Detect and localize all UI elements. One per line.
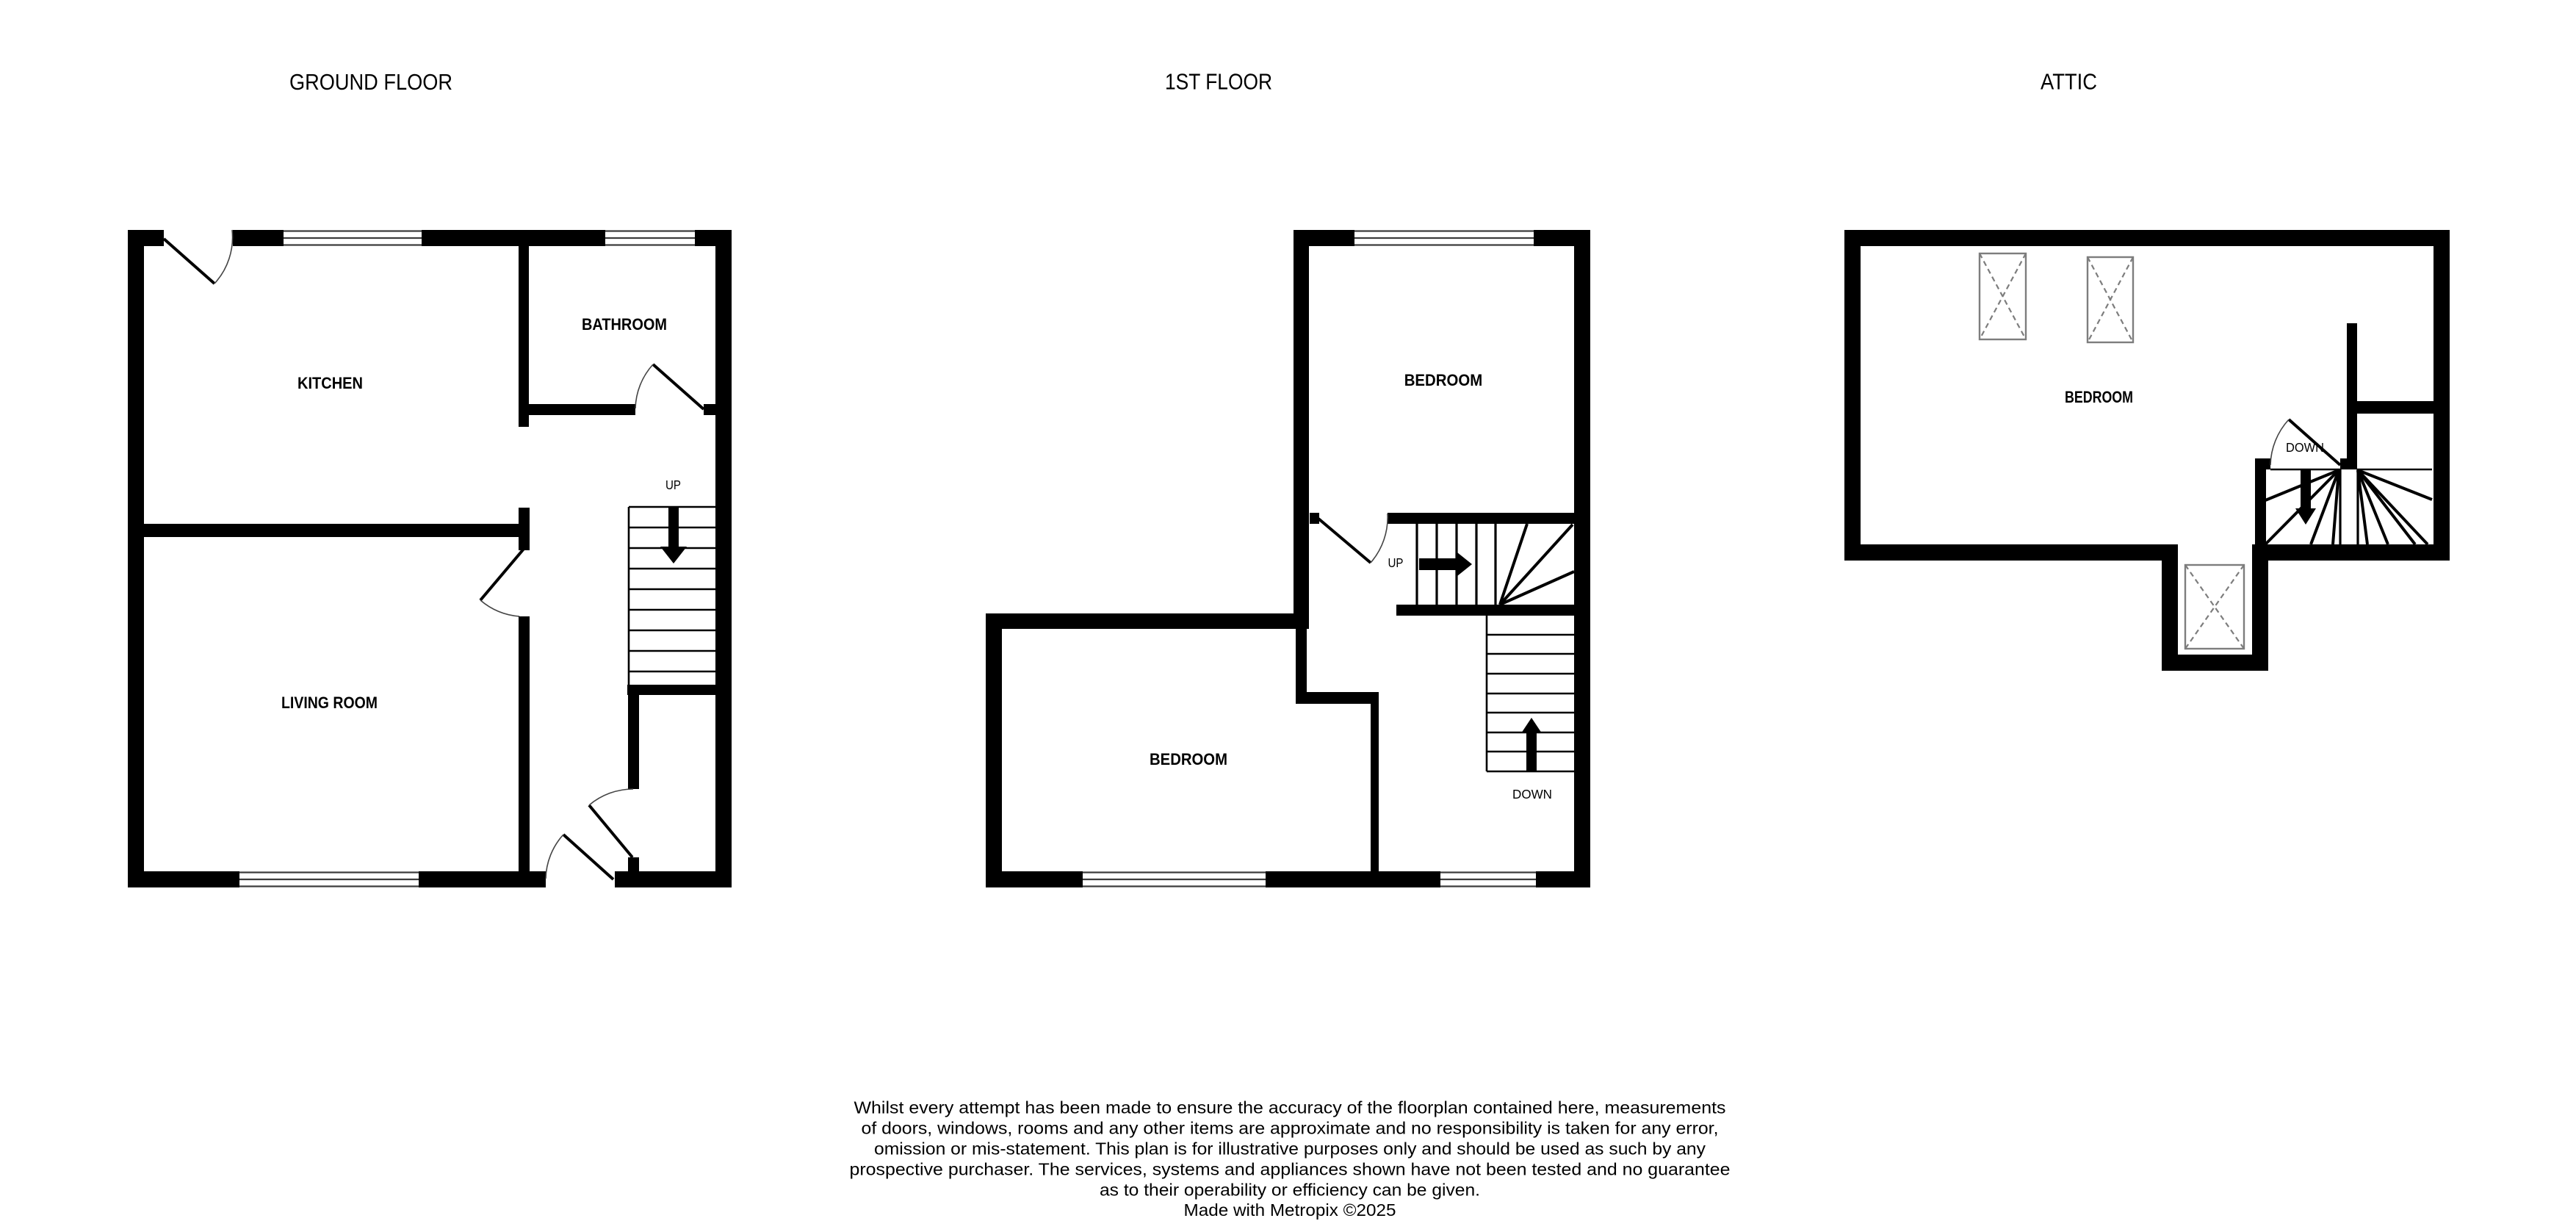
svg-text:BEDROOM: BEDROOM	[1404, 371, 1483, 389]
svg-text:Whilst every attempt has been: Whilst every attempt has been made to en…	[854, 1098, 1726, 1117]
svg-text:ATTIC: ATTIC	[2041, 69, 2097, 95]
svg-text:LIVING ROOM: LIVING ROOM	[281, 694, 378, 712]
svg-text:UP: UP	[665, 478, 681, 492]
svg-text:of doors, windows, rooms and a: of doors, windows, rooms and any other i…	[862, 1119, 1719, 1138]
svg-text:GROUND FLOOR: GROUND FLOOR	[289, 69, 452, 95]
svg-text:1ST FLOOR: 1ST FLOOR	[1165, 69, 1272, 95]
svg-text:KITCHEN: KITCHEN	[297, 374, 363, 392]
svg-text:DOWN: DOWN	[2286, 440, 2324, 455]
svg-text:omission or mis-statement. Thi: omission or mis-statement. This plan is …	[874, 1139, 1706, 1159]
svg-text:UP: UP	[1388, 555, 1404, 570]
svg-text:BEDROOM: BEDROOM	[2065, 388, 2133, 406]
svg-text:BEDROOM: BEDROOM	[1150, 750, 1227, 768]
svg-text:as to their operability or eff: as to their operability or efficiency ca…	[1100, 1180, 1480, 1199]
svg-text:Made with Metropix ©2025: Made with Metropix ©2025	[1184, 1200, 1396, 1220]
svg-text:prospective purchaser. The ser: prospective purchaser. The services, sys…	[850, 1159, 1731, 1178]
svg-text:DOWN: DOWN	[1512, 787, 1552, 802]
svg-text:BATHROOM: BATHROOM	[582, 315, 667, 334]
